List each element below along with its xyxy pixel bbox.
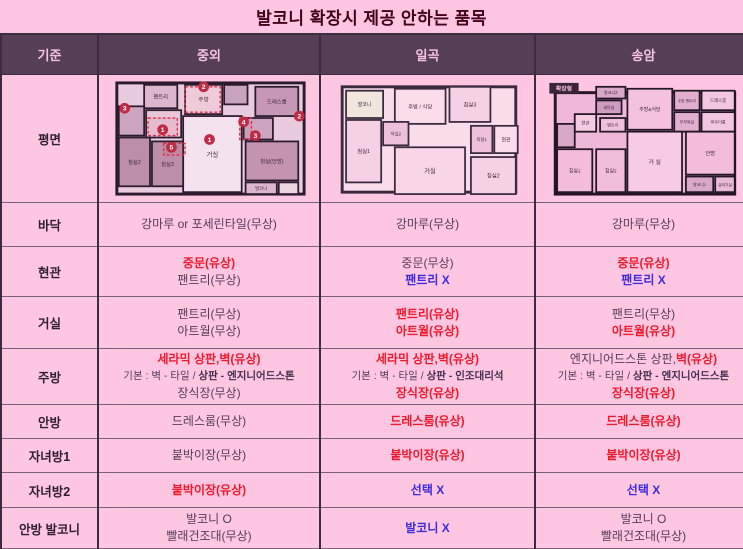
cell-text: 장식장(유상) (612, 386, 675, 400)
cell-text: 발코니 X (405, 521, 449, 535)
cell-line: 아트월(무상) (99, 323, 319, 340)
table-cell: 중문(유상)팬트리(무상) (98, 247, 320, 297)
table-cell: 붙박이장(유상) (98, 473, 320, 508)
table-cell: 선택 X (320, 473, 535, 508)
table-cell: 붙박이장(유상) (535, 439, 743, 473)
cell-line: 붙박이장(유상) (99, 482, 319, 499)
floorplan-cell-jungoe: 펜트리주방드레스룸거실침실(안방)침실2침실3발코니11223345 (98, 75, 320, 203)
comparison-table: 기준중외일곡송암 평면펜트리주방드레스룸거실침실(안방)침실2침실3발코니112… (0, 33, 743, 549)
floorplan-label: 주방 / 식당 (408, 102, 432, 110)
cell-text: 팬트리 X (621, 273, 665, 287)
floorplan-label: 욕실2 (390, 130, 401, 137)
cell-text: 드레스룸(무상) (172, 414, 246, 428)
floorplan-label: 거실 (206, 150, 218, 159)
floorplan-label: 침실1 (357, 147, 370, 155)
table-cell: 강마루(무상) (320, 203, 535, 247)
table-row: 현관중문(유상)팬트리(무상)중문(무상)팬트리 X중문(유상)팬트리 X (1, 247, 743, 297)
cell-text: 상판 - 엔지니어드스톤 (198, 370, 294, 382)
cell-text: 세라믹 상판,벽(유상) (376, 352, 479, 366)
table-cell: 엔지니어드스톤 상판,벽(유상)기본 : 벽 - 타일 / 상판 - 엔지니어드… (535, 349, 743, 405)
table-cell: 드레스룸(유상) (320, 405, 535, 439)
floorplan-jungoe: 펜트리주방드레스룸거실침실(안방)침실2침실3발코니11223345 (107, 79, 312, 198)
cell-text: 드레스룸(유상) (606, 414, 680, 428)
cell-line: 기본 : 벽 - 타일 / 상판 - 엔지니어드스톤 (99, 368, 319, 385)
table-cell: 붙박이장(무상) (98, 439, 320, 473)
cell-text: 붙박이장(무상) (172, 448, 246, 462)
row-label: 자녀방1 (1, 439, 98, 473)
cell-text: 세라믹 상판,벽(유상) (158, 352, 261, 366)
cell-text: 아트월(유상) (396, 324, 459, 338)
cell-text: 드레스룸(유상) (390, 414, 464, 428)
floorplan-label: 부부욕실 (680, 119, 695, 124)
table-cell: 중문(유상)팬트리 X (535, 247, 743, 297)
floorplan-cell-songam: 발코니2세탁실주방&식당주방 팬트리드레스룸현관팬트리부부욕실파우더룸침실1침실… (535, 75, 743, 203)
table-row: 자녀방1붙박이장(무상)붙박이장(유상)붙박이장(유상) (1, 439, 743, 473)
cell-text: 빨래건조대(무상) (166, 529, 251, 543)
floorplan-label: 주방 팬트리 (678, 98, 696, 103)
floorplan-room (278, 182, 298, 194)
cell-line: 드레스룸(무상) (99, 413, 319, 430)
table-row: 자녀방2붙박이장(유상)선택 X선택 X (1, 473, 743, 508)
floorplan-label: 발코니2 (604, 89, 618, 95)
cell-line: 강마루(무상) (536, 216, 743, 233)
floorplan-label: 침실2 (127, 158, 140, 166)
floorplan-label: 현관 (581, 120, 589, 126)
column-header-2: 일곡 (320, 34, 535, 75)
table-cell: 세라믹 상판,벽(유상)기본 : 벽 - 타일 / 상판 - 엔지니어드스톤장식… (98, 349, 320, 405)
cell-line: 팬트리(무상) (536, 306, 743, 323)
floorplan-label: 거실 (424, 166, 436, 175)
cell-line: 중문(유상) (99, 255, 319, 272)
floorplan-label: 4 (241, 119, 245, 126)
cell-line: 기본 : 벽 - 타일 / 상판 - 인조대리석 (321, 368, 534, 385)
floorplan-label: 현관 (501, 136, 510, 143)
cell-text: 벽(유상) (676, 352, 717, 366)
cell-text: 선택 X (411, 483, 444, 497)
cell-text: 팬트리(무상) (177, 273, 240, 287)
cell-line: 엔지니어드스톤 상판,벽(유상) (536, 351, 743, 368)
floorplan-label: 파우더룸 (711, 118, 726, 124)
floorplan-label: 침실2 (486, 172, 499, 180)
table-row: 바닥강마루 or 포세린타일(무상)강마루(무상)강마루(무상) (1, 203, 743, 247)
cell-text: 팬트리 X (405, 273, 449, 287)
column-header-0: 기준 (1, 34, 98, 75)
floorplan-label: 침실1 (569, 168, 581, 175)
table-cell: 강마루(무상) (535, 203, 743, 247)
cell-line: 중문(유상) (536, 255, 743, 272)
cell-text: 발코니 O (186, 512, 232, 526)
table-cell: 발코니 O빨래건조대(무상) (98, 508, 320, 549)
cell-line: 붙박이장(유상) (536, 447, 743, 464)
row-label: 현관 (1, 247, 98, 297)
cell-line: 드레스룸(유상) (536, 413, 743, 430)
cell-line: 강마루(무상) (321, 216, 534, 233)
cell-line: 팬트리(무상) (99, 272, 319, 289)
cell-text: 붙박이장(유상) (172, 483, 246, 497)
cell-text: 팬트리(무상) (612, 307, 675, 321)
table-row: 안방드레스룸(무상)드레스룸(유상)드레스룸(유상) (1, 405, 743, 439)
table-cell: 선택 X (535, 473, 743, 508)
header-row: 기준중외일곡송암 (1, 34, 743, 75)
cell-line: 기본 : 벽 - 타일 / 상판 - 엔지니어드스톤 (536, 368, 743, 385)
table-row: 안방 발코니발코니 O빨래건조대(무상)발코니 X발코니 O빨래건조대(무상) (1, 508, 743, 549)
floorplan-label: 발코니 (255, 185, 267, 192)
cell-line: 아트월(유상) (321, 323, 534, 340)
table-row: 거실팬트리(무상)아트월(무상)팬트리(유상)아트월(유상)팬트리(무상)아트월… (1, 297, 743, 349)
floorplan-label: 침실2 (605, 168, 617, 175)
cell-line: 붙박이장(무상) (99, 447, 319, 464)
table-cell: 드레스룸(무상) (98, 405, 320, 439)
cell-line: 장식장(무상) (99, 385, 319, 402)
floorplan-label: 주방&식당 (639, 106, 661, 113)
cell-text: 붙박이장(유상) (606, 448, 680, 462)
cell-line: 강마루 or 포세린타일(무상) (99, 216, 319, 233)
floorplan-label: 안방 (705, 149, 715, 157)
cell-line: 선택 X (536, 482, 743, 499)
cell-text: 기본 : 벽 - 타일 / (123, 370, 198, 382)
table-cell: 팬트리(무상)아트월(유상) (535, 297, 743, 349)
floorplan-label: 확장형 (556, 84, 572, 92)
cell-text: 중문(유상) (183, 256, 235, 270)
cell-text: 빨래건조대(무상) (601, 529, 686, 543)
row-label: 주방 (1, 349, 98, 405)
cell-line: 발코니 O (99, 511, 319, 528)
cell-text: 아트월(무상) (177, 324, 240, 338)
cell-text: 장식장(무상) (177, 386, 240, 400)
table-cell: 팬트리(무상)아트월(무상) (98, 297, 320, 349)
floorplan-label: 거 실 (649, 158, 661, 166)
cell-text: 장식장(유상) (396, 386, 459, 400)
cell-line: 발코니 O (536, 511, 743, 528)
table-cell: 붙박이장(유상) (320, 439, 535, 473)
cell-line: 붙박이장(유상) (321, 447, 534, 464)
cell-text: 선택 X (627, 483, 660, 497)
floorplan-label: 발코니1 (693, 182, 706, 187)
floorplan-label: 드레스룸 (266, 97, 286, 105)
floorplan-label: 팬트리 (607, 121, 619, 127)
cell-line: 팬트리(유상) (321, 306, 534, 323)
cell-text: 발코니 O (621, 512, 667, 526)
table-cell: 세라믹 상판,벽(유상)기본 : 벽 - 타일 / 상판 - 인조대리석장식장(… (320, 349, 535, 405)
row-label: 자녀방2 (1, 473, 98, 508)
table-row: 주방세라믹 상판,벽(유상)기본 : 벽 - 타일 / 상판 - 엔지니어드스톤… (1, 349, 743, 405)
floorplan-label: 1 (207, 137, 211, 144)
table-cell: 드레스룸(유상) (535, 405, 743, 439)
floorplan-label: 3 (122, 106, 126, 113)
floorplan-label: 드레스룸 (710, 97, 726, 104)
floorplan-label: 2 (201, 84, 205, 91)
cell-line: 선택 X (321, 482, 534, 499)
table-cell: 강마루 or 포세린타일(무상) (98, 203, 320, 247)
floorplan-label: 실외기실 (718, 182, 732, 187)
column-header-3: 송암 (535, 34, 743, 75)
cell-line: 세라믹 상판,벽(유상) (321, 351, 534, 368)
cell-line: 장식장(유상) (536, 385, 743, 402)
cell-text: 상판 - 엔지니어드스톤 (633, 370, 729, 382)
cell-text: 엔지니어드스톤 상판, (570, 352, 676, 366)
cell-text: 강마루(무상) (396, 217, 459, 231)
cell-line: 드레스룸(유상) (321, 413, 534, 430)
table-cell: 중문(무상)팬트리 X (320, 247, 535, 297)
floorplan-label: 침실3 (161, 160, 174, 168)
column-header-1: 중외 (98, 34, 320, 75)
cell-line: 팬트리(무상) (99, 306, 319, 323)
row-label-plans: 평면 (1, 75, 98, 203)
floorplan-label: 발코니 (357, 101, 370, 108)
cell-line: 장식장(유상) (321, 385, 534, 402)
cell-text: 팬트리(유상) (396, 307, 459, 321)
cell-text: 강마루 or 포세린타일(무상) (141, 217, 277, 231)
cell-line: 발코니 X (321, 520, 534, 537)
floorplan-label: 침실(안방) (260, 157, 284, 165)
table-cell: 발코니 X (320, 508, 535, 549)
floorplan-label: 욕실1 (476, 136, 487, 143)
row-label: 안방 (1, 405, 98, 439)
cell-line: 세라믹 상판,벽(유상) (99, 351, 319, 368)
floorplan-label: 1 (160, 127, 164, 134)
floorplan-room (557, 124, 575, 147)
cell-line: 빨래건조대(무상) (536, 528, 743, 545)
row-label: 거실 (1, 297, 98, 349)
floorplan-cell-ilgok: 발코니주방 / 식당침실3욕실2침실1욕실1현관거실침실2 (320, 75, 535, 203)
floorplan-label: 3 (253, 133, 257, 140)
cell-text: 상판 - 인조대리석 (427, 370, 504, 382)
floorplan-songam: 발코니2세탁실주방&식당주방 팬트리드레스룸현관팬트리부부욕실파우더룸침실1침실… (543, 79, 743, 198)
cell-text: 기본 : 벽 - 타일 / (558, 370, 633, 382)
cell-line: 팬트리 X (321, 272, 534, 289)
cell-text: 강마루(무상) (612, 217, 675, 231)
table-cell: 발코니 O빨래건조대(무상) (535, 508, 743, 549)
cell-text: 중문(유상) (617, 256, 669, 270)
cell-text: 팬트리(무상) (177, 307, 240, 321)
page-title: 발코니 확장시 제공 안하는 품목 (0, 0, 743, 33)
table-body: 평면펜트리주방드레스룸거실침실(안방)침실2침실3발코니11223345발코니주… (1, 75, 743, 549)
cell-line: 중문(무상) (321, 255, 534, 272)
floorplan-room (224, 85, 247, 105)
table-cell: 팬트리(유상)아트월(유상) (320, 297, 535, 349)
cell-line: 아트월(유상) (536, 323, 743, 340)
row-label: 바닥 (1, 203, 98, 247)
table-header: 기준중외일곡송암 (1, 34, 743, 75)
floorplan-label: 펜트리 (153, 93, 168, 101)
floorplan-ilgok: 발코니주방 / 식당침실3욕실2침실1욕실1현관거실침실2 (330, 79, 526, 198)
cell-text: 기본 : 벽 - 타일 / (351, 370, 426, 382)
cell-line: 팬트리 X (536, 272, 743, 289)
cell-text: 중문(무상) (401, 256, 453, 270)
cell-line: 빨래건조대(무상) (99, 528, 319, 545)
table-row-plans: 평면펜트리주방드레스룸거실침실(안방)침실2침실3발코니11223345발코니주… (1, 75, 743, 203)
floorplan-label: 세탁실 (603, 104, 615, 110)
row-label: 안방 발코니 (1, 508, 98, 549)
floorplan-label: 2 (297, 113, 301, 120)
cell-text: 붙박이장(유상) (390, 448, 464, 462)
cell-text: 아트월(유상) (612, 324, 675, 338)
page: 발코니 확장시 제공 안하는 품목 기준중외일곡송암 평면펜트리주방드레스룸거실… (0, 0, 743, 548)
floorplan-label: 5 (169, 145, 173, 152)
floorplan-label: 침실3 (463, 100, 476, 108)
